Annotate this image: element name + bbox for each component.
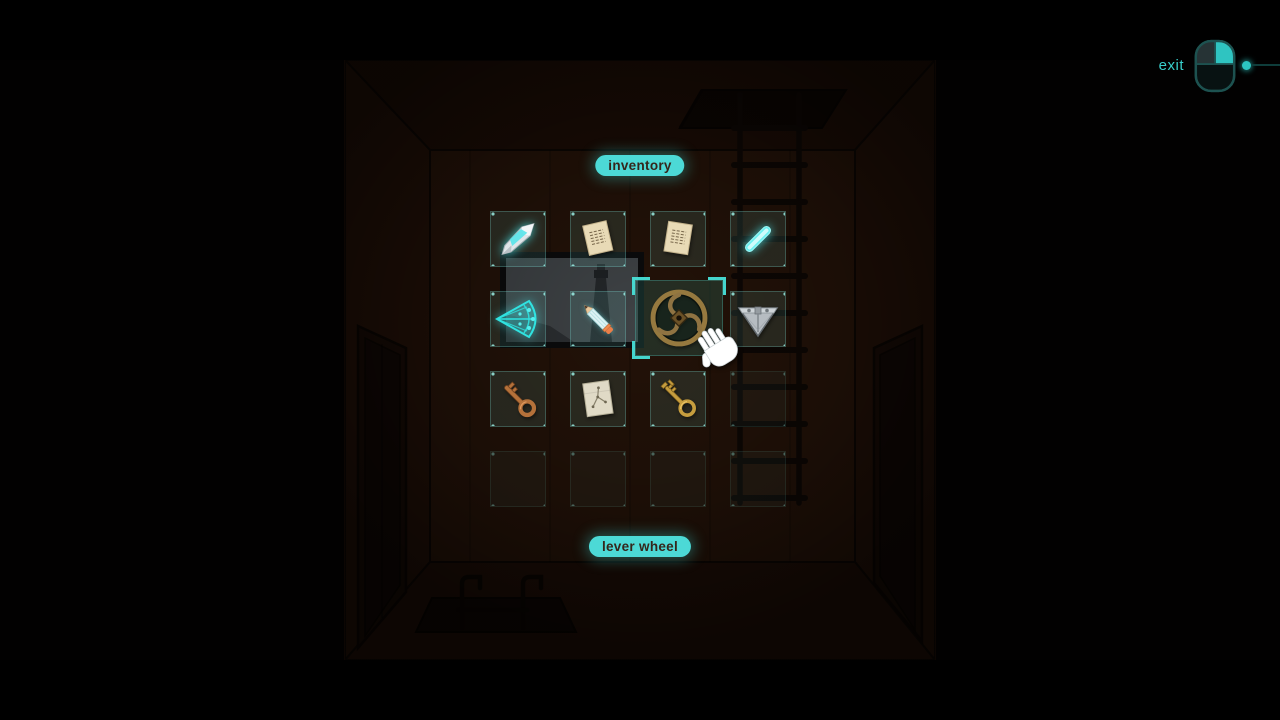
room-scene bbox=[0, 0, 1280, 720]
inventory-slot-glow-stick[interactable] bbox=[730, 211, 786, 267]
selected-item-label: lever wheel bbox=[602, 539, 678, 554]
inventory-title-pill: inventory bbox=[595, 155, 684, 176]
hud-indicator-line bbox=[1252, 64, 1280, 66]
ceiling bbox=[345, 60, 935, 150]
inventory-slot-empty bbox=[570, 451, 626, 507]
hud-indicator-dot bbox=[1242, 61, 1251, 70]
exit-button[interactable]: exit bbox=[1128, 57, 1184, 74]
crystal-shard-icon bbox=[494, 215, 542, 263]
inventory-slot-crystal-shard[interactable] bbox=[490, 211, 546, 267]
inventory-slot-paper-note-2[interactable] bbox=[650, 211, 706, 267]
inventory-slot-pencil[interactable] bbox=[570, 291, 626, 347]
ceiling-hatch bbox=[680, 90, 846, 128]
inventory-slot-diagram-note[interactable] bbox=[570, 371, 626, 427]
inventory-slot-empty bbox=[730, 371, 786, 427]
inventory-slot-empty bbox=[490, 451, 546, 507]
game-screen: inventory lever wheel exit bbox=[0, 0, 1280, 720]
paper-note-icon bbox=[575, 216, 621, 262]
gold-key-icon bbox=[653, 374, 703, 424]
copper-key-icon bbox=[493, 374, 543, 424]
inventory-title-label: inventory bbox=[608, 158, 671, 173]
inventory-slot-empty bbox=[730, 451, 786, 507]
inventory-slot-paper-note-1[interactable] bbox=[570, 211, 626, 267]
inventory-slot-glowing-fan[interactable] bbox=[490, 291, 546, 347]
top-bar bbox=[0, 0, 1280, 60]
mouse-right-click-icon bbox=[1192, 37, 1238, 95]
inventory-slot-gold-key[interactable] bbox=[650, 371, 706, 427]
hand-cursor bbox=[694, 324, 746, 376]
left-door bbox=[358, 326, 406, 648]
glow-stick-icon bbox=[734, 215, 782, 263]
inventory-slot-copper-key[interactable] bbox=[490, 371, 546, 427]
paper-note-icon bbox=[655, 216, 701, 262]
bottom-bar bbox=[0, 660, 1280, 720]
exit-label: exit bbox=[1159, 57, 1184, 74]
pencil-icon bbox=[574, 295, 622, 343]
glowing-fan-icon bbox=[493, 294, 543, 344]
selected-item-pill: lever wheel bbox=[589, 536, 691, 557]
diagram-note-icon bbox=[575, 376, 621, 422]
inventory-slot-empty bbox=[650, 451, 706, 507]
